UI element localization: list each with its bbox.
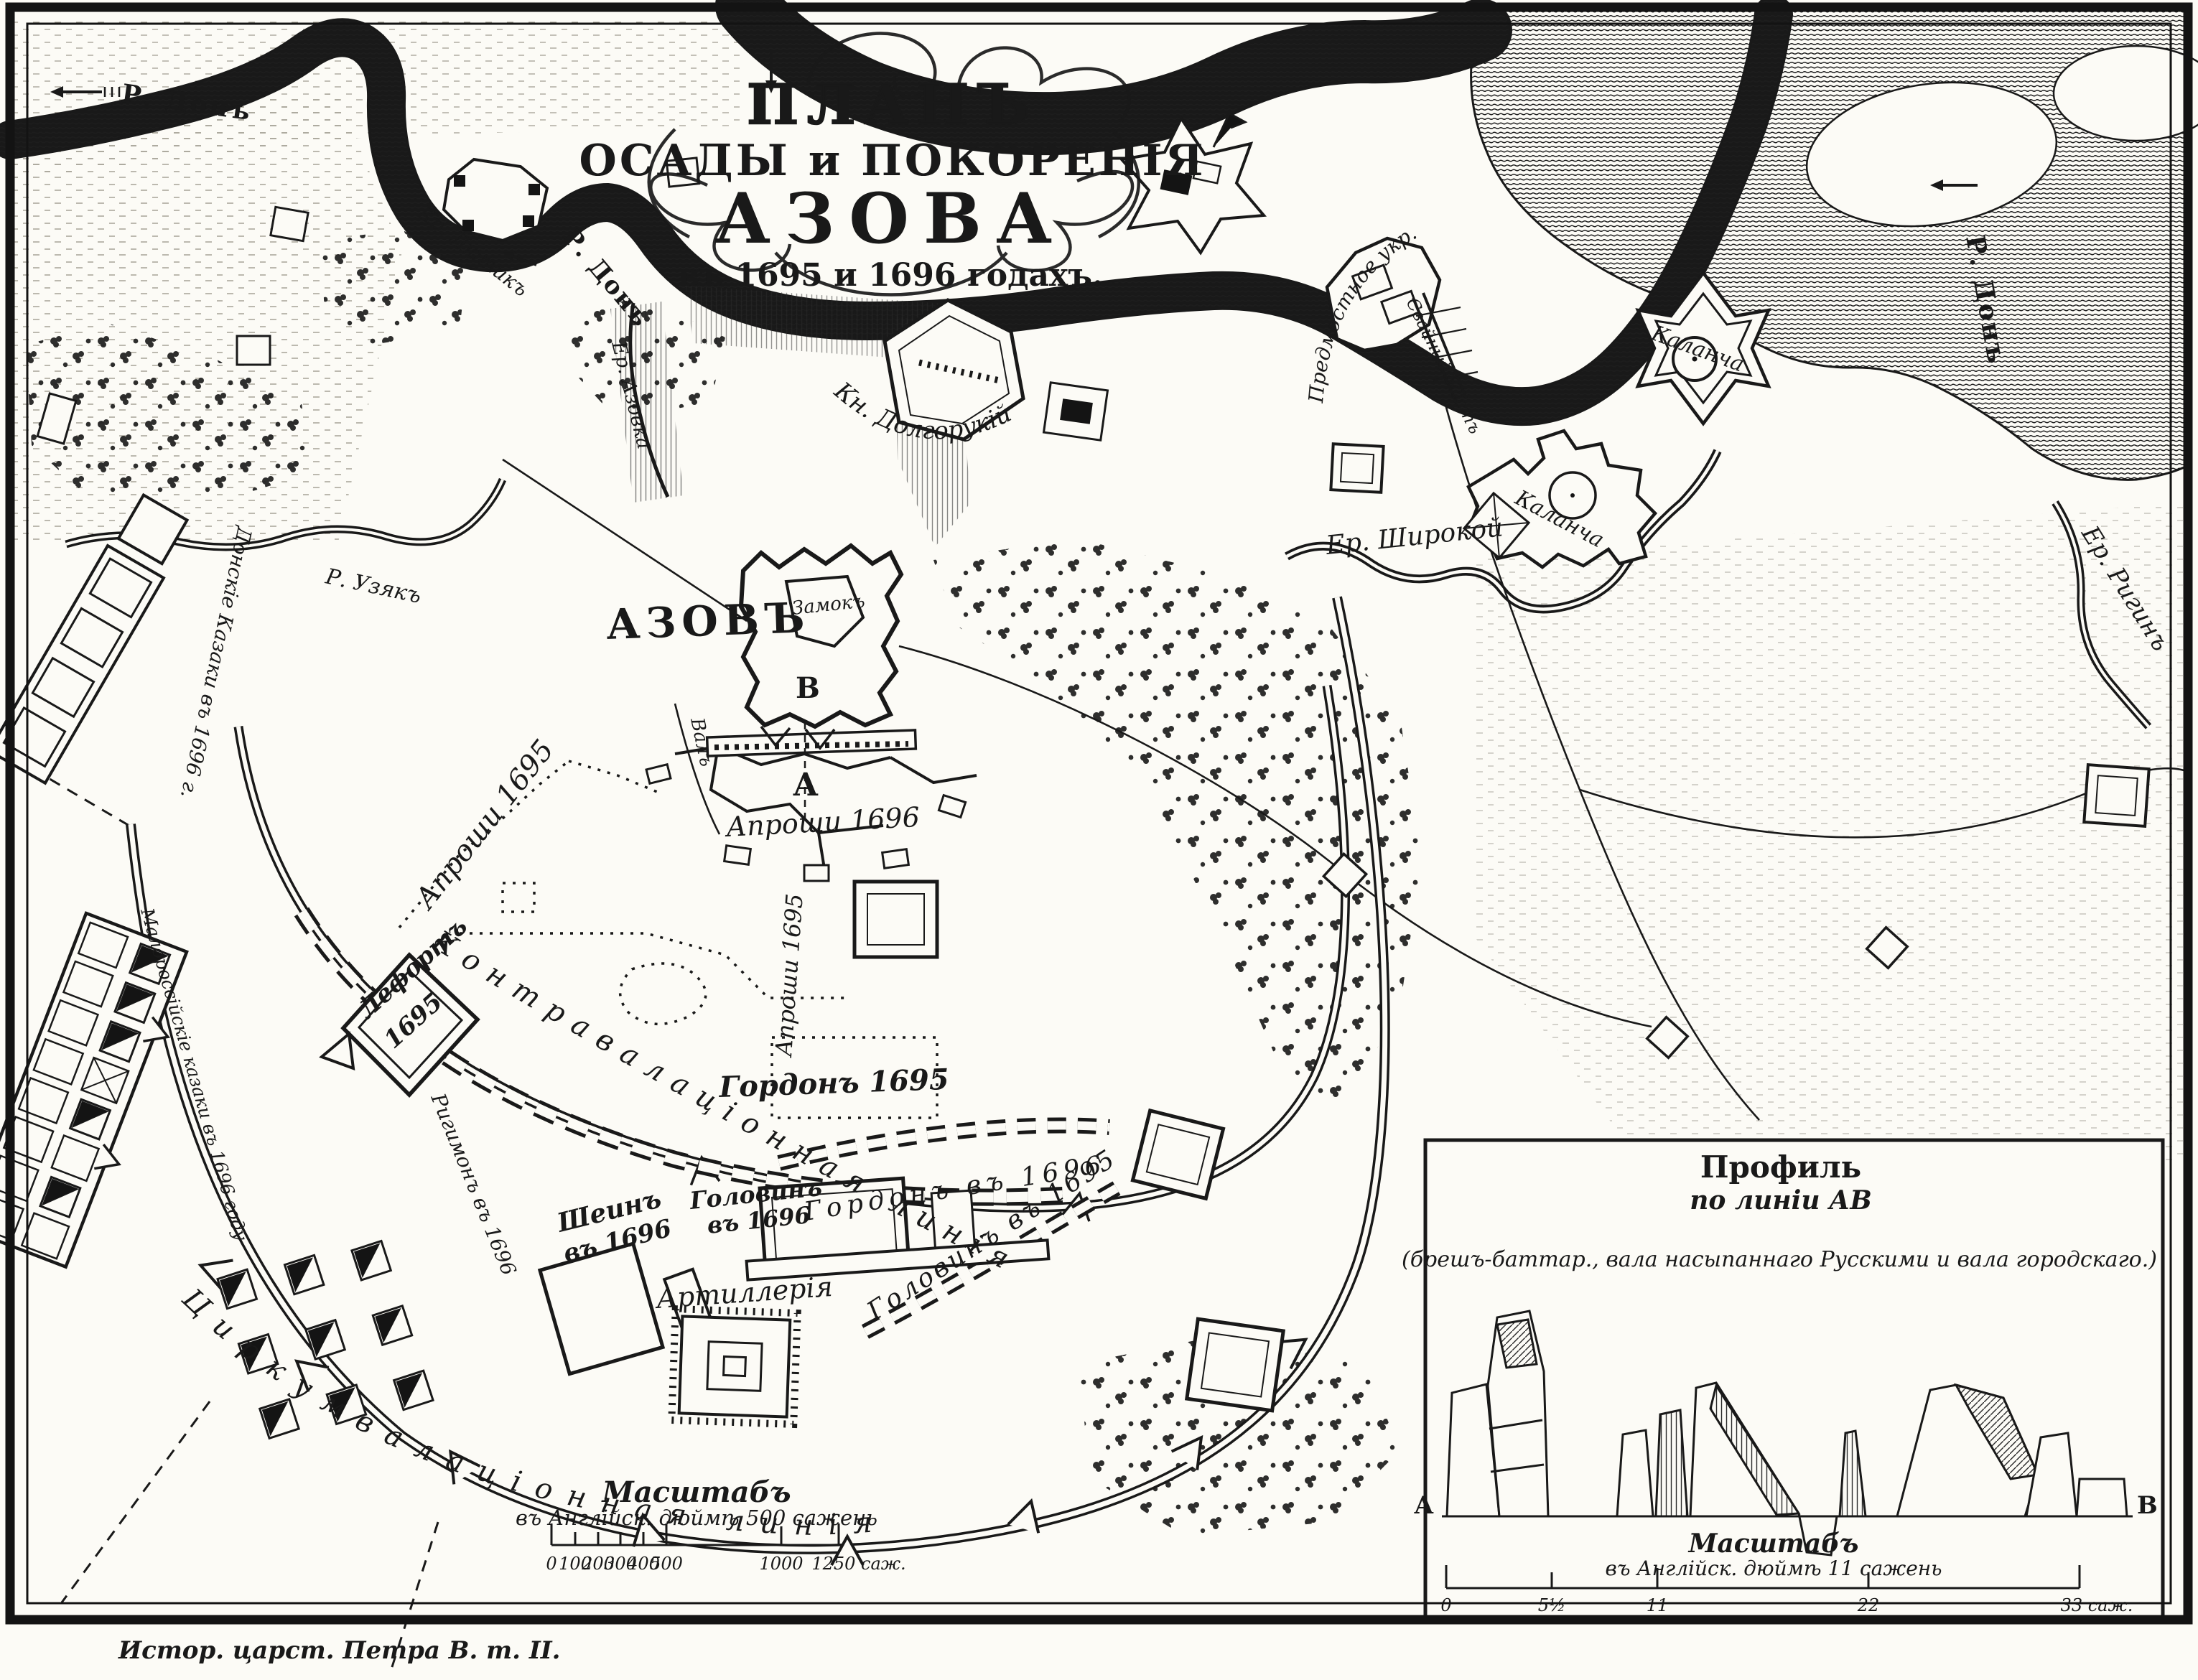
point-b-label: В bbox=[796, 671, 820, 705]
malorossy-label: Малороссійскіе казаки въ 1696 году bbox=[136, 905, 252, 1243]
forest-east-of-azov bbox=[933, 538, 1422, 1113]
inset-point-b: B bbox=[2137, 1491, 2158, 1520]
river-uzyak-label: Р. Узякъ bbox=[322, 564, 423, 609]
map-sheet: АЗОВЪ Замокъ В А Валъ Р. Донъ Р. Донъ Р.… bbox=[0, 0, 2198, 1680]
inset-scale-title: Масштабъ bbox=[1687, 1529, 1859, 1559]
inset-scale-subtitle: въ Англійск. дюймѣ 11 сажень bbox=[1606, 1557, 1942, 1580]
inset-point-a: A bbox=[1414, 1491, 1434, 1520]
inset-note: (брешъ-баттар., вала насыпаннаго Русским… bbox=[1402, 1247, 2157, 1272]
main-scale-tick: 1000 bbox=[759, 1554, 803, 1574]
inset-title: Профиль bbox=[1700, 1149, 1861, 1185]
title-line-3: АЗОВА bbox=[714, 178, 1066, 259]
main-scale-tick: 0 bbox=[546, 1554, 557, 1574]
inset-subtitle: по линіи АВ bbox=[1690, 1185, 1872, 1215]
inset-scale-tick: 0 bbox=[1440, 1595, 1451, 1615]
aproshi-1695-nw-label: Апроши 1695 bbox=[408, 734, 561, 916]
main-scale-title: Масштабъ bbox=[600, 1475, 791, 1509]
aproshi-1696-label: Апроши 1696 bbox=[723, 801, 921, 843]
river-shirokoy-label: Ер. Широкой bbox=[1324, 513, 1504, 561]
source-caption: Истор. царст. Петра В. т. II. bbox=[118, 1636, 560, 1665]
inset-scale-tick: 33 саж. bbox=[2061, 1595, 2133, 1615]
title-line-4: въ 1695 и 1696 годахъ. bbox=[678, 257, 1104, 294]
profile-inset: Профиль по линіи АВ (брешъ-баттар., вала… bbox=[1402, 1140, 2163, 1617]
artillery-park bbox=[671, 1309, 797, 1424]
title-line-1: ПЛАНЪ bbox=[747, 73, 1038, 136]
inset-scale-tick: 5½ bbox=[1538, 1595, 1566, 1615]
aproshi-1695-c-label: Апроши 1695 bbox=[770, 892, 809, 1058]
azov-fortress bbox=[741, 546, 901, 748]
inset-scale-tick: 22 bbox=[1857, 1595, 1880, 1615]
main-scale-tick: 1250 саж. bbox=[811, 1554, 905, 1574]
main-scale-tick: 500 bbox=[650, 1554, 683, 1574]
point-a-label: А bbox=[793, 767, 819, 803]
rigimon-label: Ригимонъ въ 1696 bbox=[426, 1089, 521, 1279]
main-scale-subtitle: въ Англійск. дюймѣ 500 сажень bbox=[516, 1506, 877, 1530]
inset-scale-tick: 11 bbox=[1647, 1595, 1669, 1615]
city-label: АЗОВЪ bbox=[605, 593, 811, 649]
gordon-1695-label: Гордонъ 1695 bbox=[718, 1063, 950, 1104]
